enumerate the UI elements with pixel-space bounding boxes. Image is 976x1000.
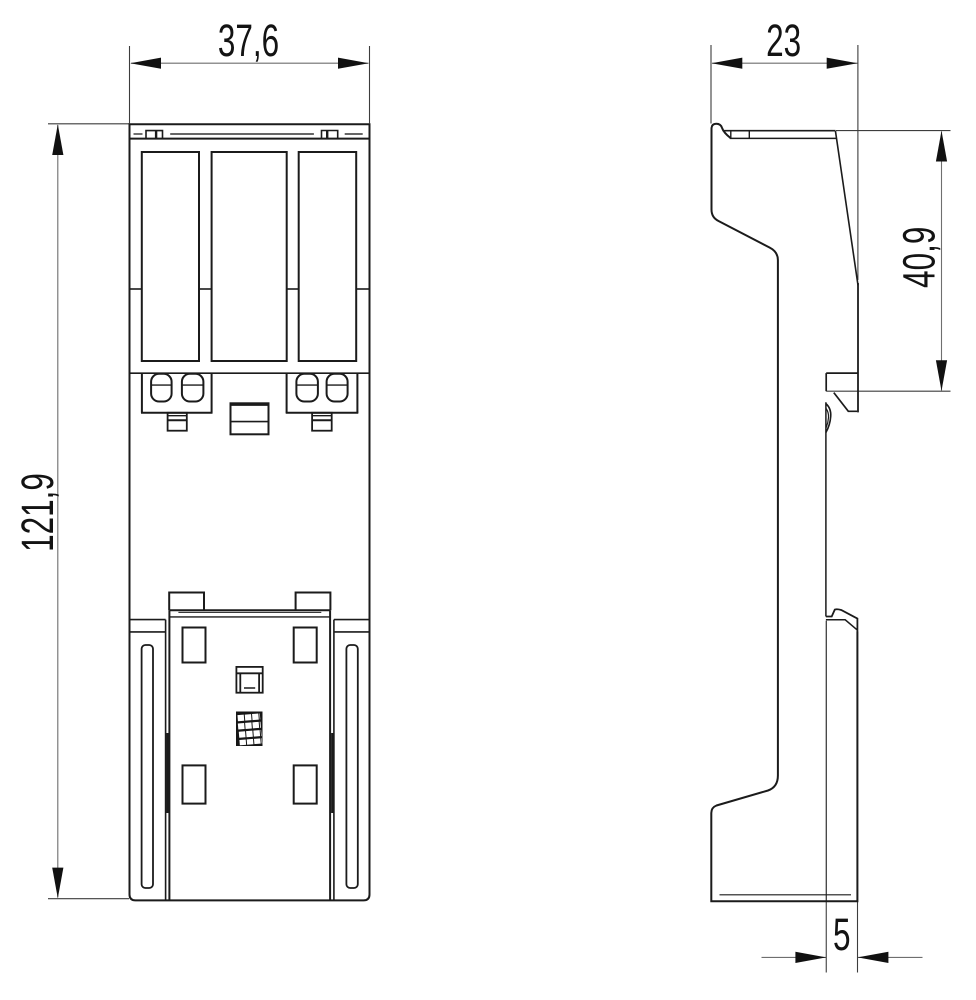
svg-text:37,6: 37,6 <box>218 17 279 67</box>
svg-text:40,9: 40,9 <box>895 227 945 288</box>
svg-text:5: 5 <box>833 911 851 961</box>
svg-text:121,9: 121,9 <box>14 473 64 552</box>
svg-text:23: 23 <box>766 17 801 67</box>
